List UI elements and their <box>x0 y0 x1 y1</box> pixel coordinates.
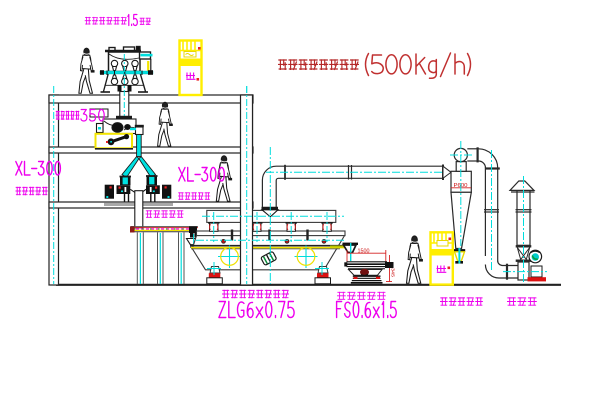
svg-text:1500: 1500 <box>358 249 370 255</box>
svg-text:345: 345 <box>391 268 396 278</box>
